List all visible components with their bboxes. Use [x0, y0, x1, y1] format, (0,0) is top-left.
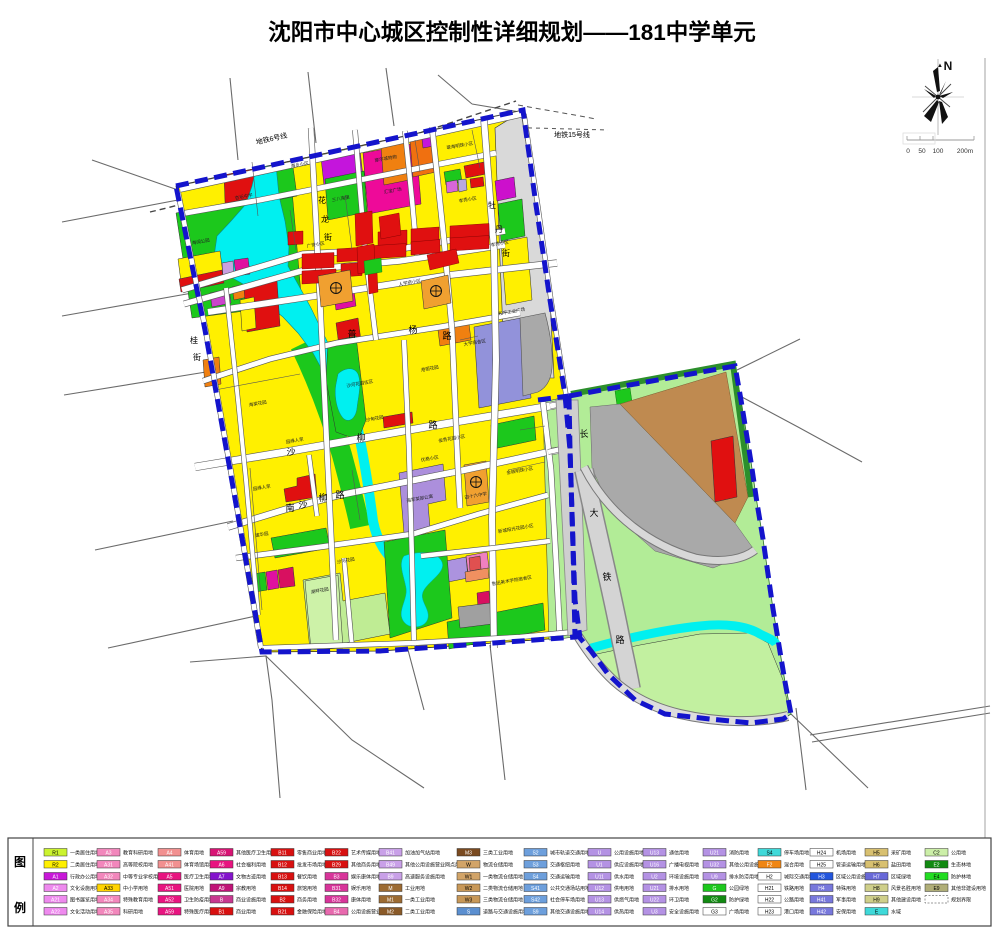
svg-text:路: 路 — [335, 489, 344, 500]
svg-text:风景名胜用地: 风景名胜用地 — [891, 885, 921, 892]
svg-text:H42: H42 — [817, 909, 826, 915]
svg-text:B1: B1 — [218, 909, 224, 915]
svg-text:南: 南 — [285, 502, 294, 513]
svg-text:公园绿地: 公园绿地 — [729, 885, 749, 892]
svg-text:商业用地: 商业用地 — [236, 909, 256, 916]
svg-text:文化设施用地: 文化设施用地 — [70, 885, 100, 892]
svg-text:E4: E4 — [933, 874, 939, 880]
svg-text:交通运输用地: 交通运输用地 — [550, 874, 580, 881]
svg-text:生态林地: 生态林地 — [951, 862, 971, 869]
svg-text:U13: U13 — [595, 897, 604, 903]
svg-text:金融保险用地: 金融保险用地 — [297, 909, 327, 916]
svg-text:B11: B11 — [278, 850, 287, 856]
svg-text:社会福利用地: 社会福利用地 — [236, 862, 266, 869]
svg-text:特殊教育用地: 特殊教育用地 — [123, 897, 153, 904]
svg-text:街: 街 — [502, 248, 510, 258]
svg-text:工业用地: 工业用地 — [405, 885, 425, 892]
svg-text:H24: H24 — [817, 850, 826, 856]
svg-text:M2: M2 — [387, 909, 394, 915]
svg-text:A3: A3 — [105, 850, 111, 856]
svg-text:安保用地: 安保用地 — [836, 909, 856, 916]
svg-text:交通枢纽用地: 交通枢纽用地 — [550, 862, 580, 869]
svg-text:高等院校用地: 高等院校用地 — [123, 862, 153, 869]
svg-text:公共交通场站用地: 公共交通场站用地 — [550, 885, 590, 892]
svg-text:B2: B2 — [279, 897, 285, 903]
svg-text:公用地: 公用地 — [951, 850, 966, 857]
svg-text:N: N — [944, 59, 953, 73]
svg-text:特殊用地: 特殊用地 — [836, 885, 856, 892]
svg-text:路: 路 — [428, 419, 437, 430]
svg-text:A41: A41 — [165, 862, 174, 868]
svg-text:A21: A21 — [51, 897, 60, 903]
svg-text:排水用地: 排水用地 — [669, 885, 689, 892]
svg-text:A31: A31 — [104, 862, 113, 868]
svg-text:S42: S42 — [531, 897, 540, 903]
svg-text:采矿用地: 采矿用地 — [891, 850, 911, 857]
svg-text:E9: E9 — [933, 886, 939, 892]
svg-text:H25: H25 — [817, 862, 826, 868]
svg-text:A59: A59 — [165, 909, 174, 915]
svg-text:消防用地: 消防用地 — [729, 850, 749, 857]
svg-text:B49: B49 — [386, 862, 395, 868]
svg-text:商务用地: 商务用地 — [297, 897, 317, 904]
svg-text:体育场馆用地: 体育场馆用地 — [184, 862, 214, 869]
svg-text:B13: B13 — [278, 874, 287, 880]
svg-text:柳: 柳 — [318, 492, 327, 503]
svg-text:通信用地: 通信用地 — [669, 850, 689, 857]
svg-text:H4: H4 — [818, 886, 825, 892]
svg-text:U: U — [598, 850, 602, 856]
svg-text:沙: 沙 — [298, 500, 307, 510]
svg-text:U21: U21 — [710, 850, 719, 856]
svg-text:H8: H8 — [873, 886, 880, 892]
svg-text:U21: U21 — [650, 886, 659, 892]
svg-text:公用设施用地: 公用设施用地 — [614, 850, 644, 857]
svg-text:U2: U2 — [651, 874, 658, 880]
svg-text:其他非建设用地: 其他非建设用地 — [951, 885, 986, 892]
svg-text:其他交通设施用地: 其他交通设施用地 — [550, 909, 590, 916]
svg-text:供电用地: 供电用地 — [614, 885, 634, 892]
svg-text:一类物流仓储用地: 一类物流仓储用地 — [483, 874, 523, 881]
svg-text:教育科研用地: 教育科研用地 — [123, 850, 153, 857]
svg-text:50: 50 — [918, 148, 926, 155]
svg-text:餐饮用地: 餐饮用地 — [297, 874, 317, 881]
svg-text:机场用地: 机场用地 — [836, 850, 856, 857]
svg-text:管道运输用地: 管道运输用地 — [836, 862, 866, 869]
svg-text:H23: H23 — [765, 909, 774, 915]
svg-text:防护绿地: 防护绿地 — [729, 897, 749, 904]
svg-text:医院用地: 医院用地 — [184, 885, 204, 892]
svg-text:花: 花 — [318, 195, 326, 205]
svg-text:街: 街 — [324, 232, 332, 242]
svg-text:E2: E2 — [933, 862, 939, 868]
svg-text:行政办公用地: 行政办公用地 — [70, 874, 100, 881]
svg-text:U9: U9 — [711, 874, 718, 880]
svg-text:G3: G3 — [711, 909, 718, 915]
svg-text:B32: B32 — [332, 897, 341, 903]
svg-text:防护林地: 防护林地 — [951, 874, 971, 881]
svg-text:其他公用设施营业网点用地: 其他公用设施营业网点用地 — [405, 862, 465, 869]
svg-text:道路与交通设施用地: 道路与交通设施用地 — [483, 909, 528, 916]
svg-text:零售商业用地: 零售商业用地 — [297, 850, 327, 857]
svg-text:U16: U16 — [650, 862, 659, 868]
svg-text:A1: A1 — [52, 874, 58, 880]
svg-text:港口用地: 港口用地 — [784, 909, 804, 916]
svg-text:U12: U12 — [595, 886, 604, 892]
svg-text:康体用地: 康体用地 — [351, 897, 371, 904]
svg-text:街: 街 — [193, 352, 201, 362]
svg-text:杨: 杨 — [408, 324, 417, 335]
svg-text:中等专业学校用地: 中等专业学校用地 — [123, 874, 163, 881]
svg-text:A33: A33 — [104, 886, 113, 892]
svg-text:图书展览用地: 图书展览用地 — [70, 897, 100, 904]
svg-text:M3: M3 — [465, 850, 472, 856]
svg-text:卫生防疫用地: 卫生防疫用地 — [184, 897, 214, 904]
svg-text:S9: S9 — [532, 909, 538, 915]
svg-text:M1: M1 — [387, 897, 394, 903]
svg-text:S41: S41 — [531, 886, 540, 892]
svg-text:公路用地: 公路用地 — [784, 897, 804, 904]
svg-text:U22: U22 — [650, 897, 659, 903]
svg-text:丹: 丹 — [495, 225, 503, 234]
svg-text:医疗卫生用地: 医疗卫生用地 — [184, 874, 214, 881]
svg-text:大: 大 — [589, 507, 598, 518]
svg-text:牡: 牡 — [488, 200, 496, 210]
svg-text:沈阳市中心城区控制性详细规划——181中学单元: 沈阳市中心城区控制性详细规划——181中学单元 — [268, 19, 756, 45]
svg-text:W: W — [466, 862, 471, 868]
svg-text:R2: R2 — [52, 862, 59, 868]
svg-text:二类工业用地: 二类工业用地 — [405, 909, 435, 916]
svg-text:水域: 水域 — [891, 909, 901, 916]
svg-text:W1: W1 — [465, 874, 473, 880]
svg-text:其他建设用地: 其他建设用地 — [891, 897, 921, 904]
svg-text:W3: W3 — [465, 897, 473, 903]
svg-text:三类工业用地: 三类工业用地 — [483, 850, 513, 857]
svg-text:B4: B4 — [333, 909, 339, 915]
svg-text:A32: A32 — [104, 874, 113, 880]
svg-text:B31: B31 — [332, 886, 341, 892]
svg-text:路: 路 — [615, 634, 624, 645]
svg-text:沙: 沙 — [286, 447, 295, 457]
svg-text:加油加气站用地: 加油加气站用地 — [405, 850, 440, 857]
svg-text:艺术传媒用地: 艺术传媒用地 — [351, 850, 381, 857]
svg-text:U11: U11 — [595, 874, 604, 880]
svg-text:A2: A2 — [52, 886, 58, 892]
svg-text:S2: S2 — [532, 850, 538, 856]
svg-text:特殊医疗用地: 特殊医疗用地 — [184, 909, 214, 916]
svg-text:A7: A7 — [218, 874, 224, 880]
svg-text:城市轨道交通用地: 城市轨道交通用地 — [550, 850, 590, 857]
svg-text:一类居住用地: 一类居住用地 — [70, 850, 100, 857]
svg-text:H3: H3 — [818, 874, 825, 880]
svg-text:R1: R1 — [52, 850, 59, 856]
svg-text:S3: S3 — [532, 862, 538, 868]
svg-text:高速服务设施用地: 高速服务设施用地 — [405, 874, 445, 881]
svg-text:文物古迹用地: 文物古迹用地 — [236, 874, 266, 881]
svg-text:环卫用地: 环卫用地 — [669, 897, 689, 904]
svg-text:U3: U3 — [651, 909, 658, 915]
svg-text:柳: 柳 — [356, 432, 365, 443]
svg-text:U1: U1 — [596, 862, 603, 868]
svg-text:批发市场用地: 批发市场用地 — [297, 862, 327, 869]
svg-text:S4: S4 — [532, 874, 538, 880]
svg-text:例: 例 — [14, 900, 26, 915]
svg-text:盐田用地: 盐田用地 — [891, 862, 911, 869]
svg-text:混合用地: 混合用地 — [784, 862, 804, 869]
svg-text:宗教用地: 宗教用地 — [236, 885, 256, 892]
svg-text:二类居住用地: 二类居住用地 — [70, 862, 100, 869]
svg-text:A35: A35 — [104, 909, 113, 915]
svg-text:广场用地: 广场用地 — [729, 909, 749, 916]
svg-text:S4: S4 — [766, 850, 772, 856]
svg-text:H5: H5 — [873, 850, 880, 856]
svg-text:环境设施用地: 环境设施用地 — [669, 874, 699, 881]
svg-text:U13: U13 — [650, 850, 659, 856]
svg-text:B12: B12 — [278, 862, 287, 868]
svg-text:三类物流仓储用地: 三类物流仓储用地 — [483, 897, 523, 904]
svg-text:H7: H7 — [873, 874, 880, 880]
svg-text:F2: F2 — [767, 862, 773, 868]
svg-text:A52: A52 — [165, 897, 174, 903]
svg-text:桂: 桂 — [190, 335, 198, 345]
svg-text:A34: A34 — [104, 897, 113, 903]
svg-text:供应设施用地: 供应设施用地 — [614, 862, 644, 869]
svg-text:▲: ▲ — [937, 63, 943, 69]
svg-text:军事用地: 军事用地 — [836, 897, 856, 904]
svg-text:图: 图 — [14, 855, 26, 869]
svg-text:长: 长 — [579, 428, 588, 439]
svg-text:体育用地: 体育用地 — [184, 850, 204, 857]
svg-text:铁路用地: 铁路用地 — [784, 885, 804, 892]
svg-text:供燃气用地: 供燃气用地 — [614, 897, 639, 904]
svg-text:C2: C2 — [933, 850, 940, 856]
svg-text:城际交通用地: 城际交通用地 — [784, 874, 814, 881]
svg-text:B3: B3 — [333, 874, 339, 880]
svg-text:W2: W2 — [465, 886, 473, 892]
svg-text:H6: H6 — [873, 862, 880, 868]
svg-text:B14: B14 — [278, 886, 287, 892]
svg-text:供热用地: 供热用地 — [614, 909, 634, 916]
svg-text:H41: H41 — [817, 897, 826, 903]
svg-text:娱乐用地: 娱乐用地 — [351, 885, 371, 892]
svg-text:娱乐康体用地: 娱乐康体用地 — [351, 874, 381, 881]
svg-text:A6: A6 — [218, 862, 224, 868]
svg-text:G2: G2 — [711, 897, 718, 903]
svg-text:龙: 龙 — [321, 214, 329, 224]
svg-text:旅馆用地: 旅馆用地 — [297, 885, 317, 892]
svg-text:区域绿地: 区域绿地 — [891, 874, 911, 881]
svg-text:路: 路 — [442, 330, 451, 341]
svg-text:A9: A9 — [218, 886, 224, 892]
svg-text:商业设施用地: 商业设施用地 — [236, 897, 266, 904]
svg-text:停车场用地: 停车场用地 — [784, 850, 809, 857]
svg-text:B29: B29 — [332, 862, 341, 868]
svg-text:社会停车场用地: 社会停车场用地 — [550, 897, 585, 904]
svg-text:物流仓储用地: 物流仓储用地 — [483, 862, 513, 869]
svg-text:供水用地: 供水用地 — [614, 874, 634, 881]
svg-text:U14: U14 — [595, 909, 604, 915]
svg-text:G: G — [713, 886, 717, 892]
svg-text:U32: U32 — [710, 862, 719, 868]
svg-text:200m: 200m — [957, 148, 973, 155]
svg-text:一类工业用地: 一类工业用地 — [405, 897, 435, 904]
svg-text:H21: H21 — [765, 886, 774, 892]
svg-text:排水防涝用地: 排水防涝用地 — [729, 874, 759, 881]
svg-text:B9: B9 — [387, 874, 393, 880]
svg-text:0: 0 — [906, 148, 910, 155]
svg-text:中小学用地: 中小学用地 — [123, 885, 148, 892]
svg-text:二类物流仓储用地: 二类物流仓储用地 — [483, 885, 523, 892]
svg-text:A5: A5 — [166, 874, 172, 880]
svg-text:A59: A59 — [217, 850, 226, 856]
svg-text:H2: H2 — [766, 874, 773, 880]
svg-text:其他医疗卫生用地: 其他医疗卫生用地 — [236, 850, 276, 857]
svg-text:H9: H9 — [873, 897, 880, 903]
svg-text:A4: A4 — [166, 850, 172, 856]
svg-text:铁: 铁 — [602, 571, 611, 582]
svg-text:M: M — [388, 886, 392, 892]
svg-text:广播电视用地: 广播电视用地 — [669, 862, 699, 869]
svg-text:B41: B41 — [386, 850, 395, 856]
svg-text:B22: B22 — [332, 850, 341, 856]
svg-text:B21: B21 — [278, 909, 287, 915]
svg-text:100: 100 — [933, 148, 944, 155]
svg-text:A51: A51 — [165, 886, 174, 892]
svg-text:地铁15号线: 地铁15号线 — [554, 130, 590, 139]
svg-text:A22: A22 — [51, 909, 60, 915]
svg-text:普: 普 — [347, 328, 356, 339]
svg-text:安全设施用地: 安全设施用地 — [669, 909, 699, 916]
svg-text:文化活动用地: 文化活动用地 — [70, 909, 100, 916]
svg-text:规划界限: 规划界限 — [951, 897, 971, 904]
svg-text:H22: H22 — [765, 897, 774, 903]
svg-text:其他商务用地: 其他商务用地 — [351, 862, 381, 869]
svg-text:科研用地: 科研用地 — [123, 909, 143, 916]
